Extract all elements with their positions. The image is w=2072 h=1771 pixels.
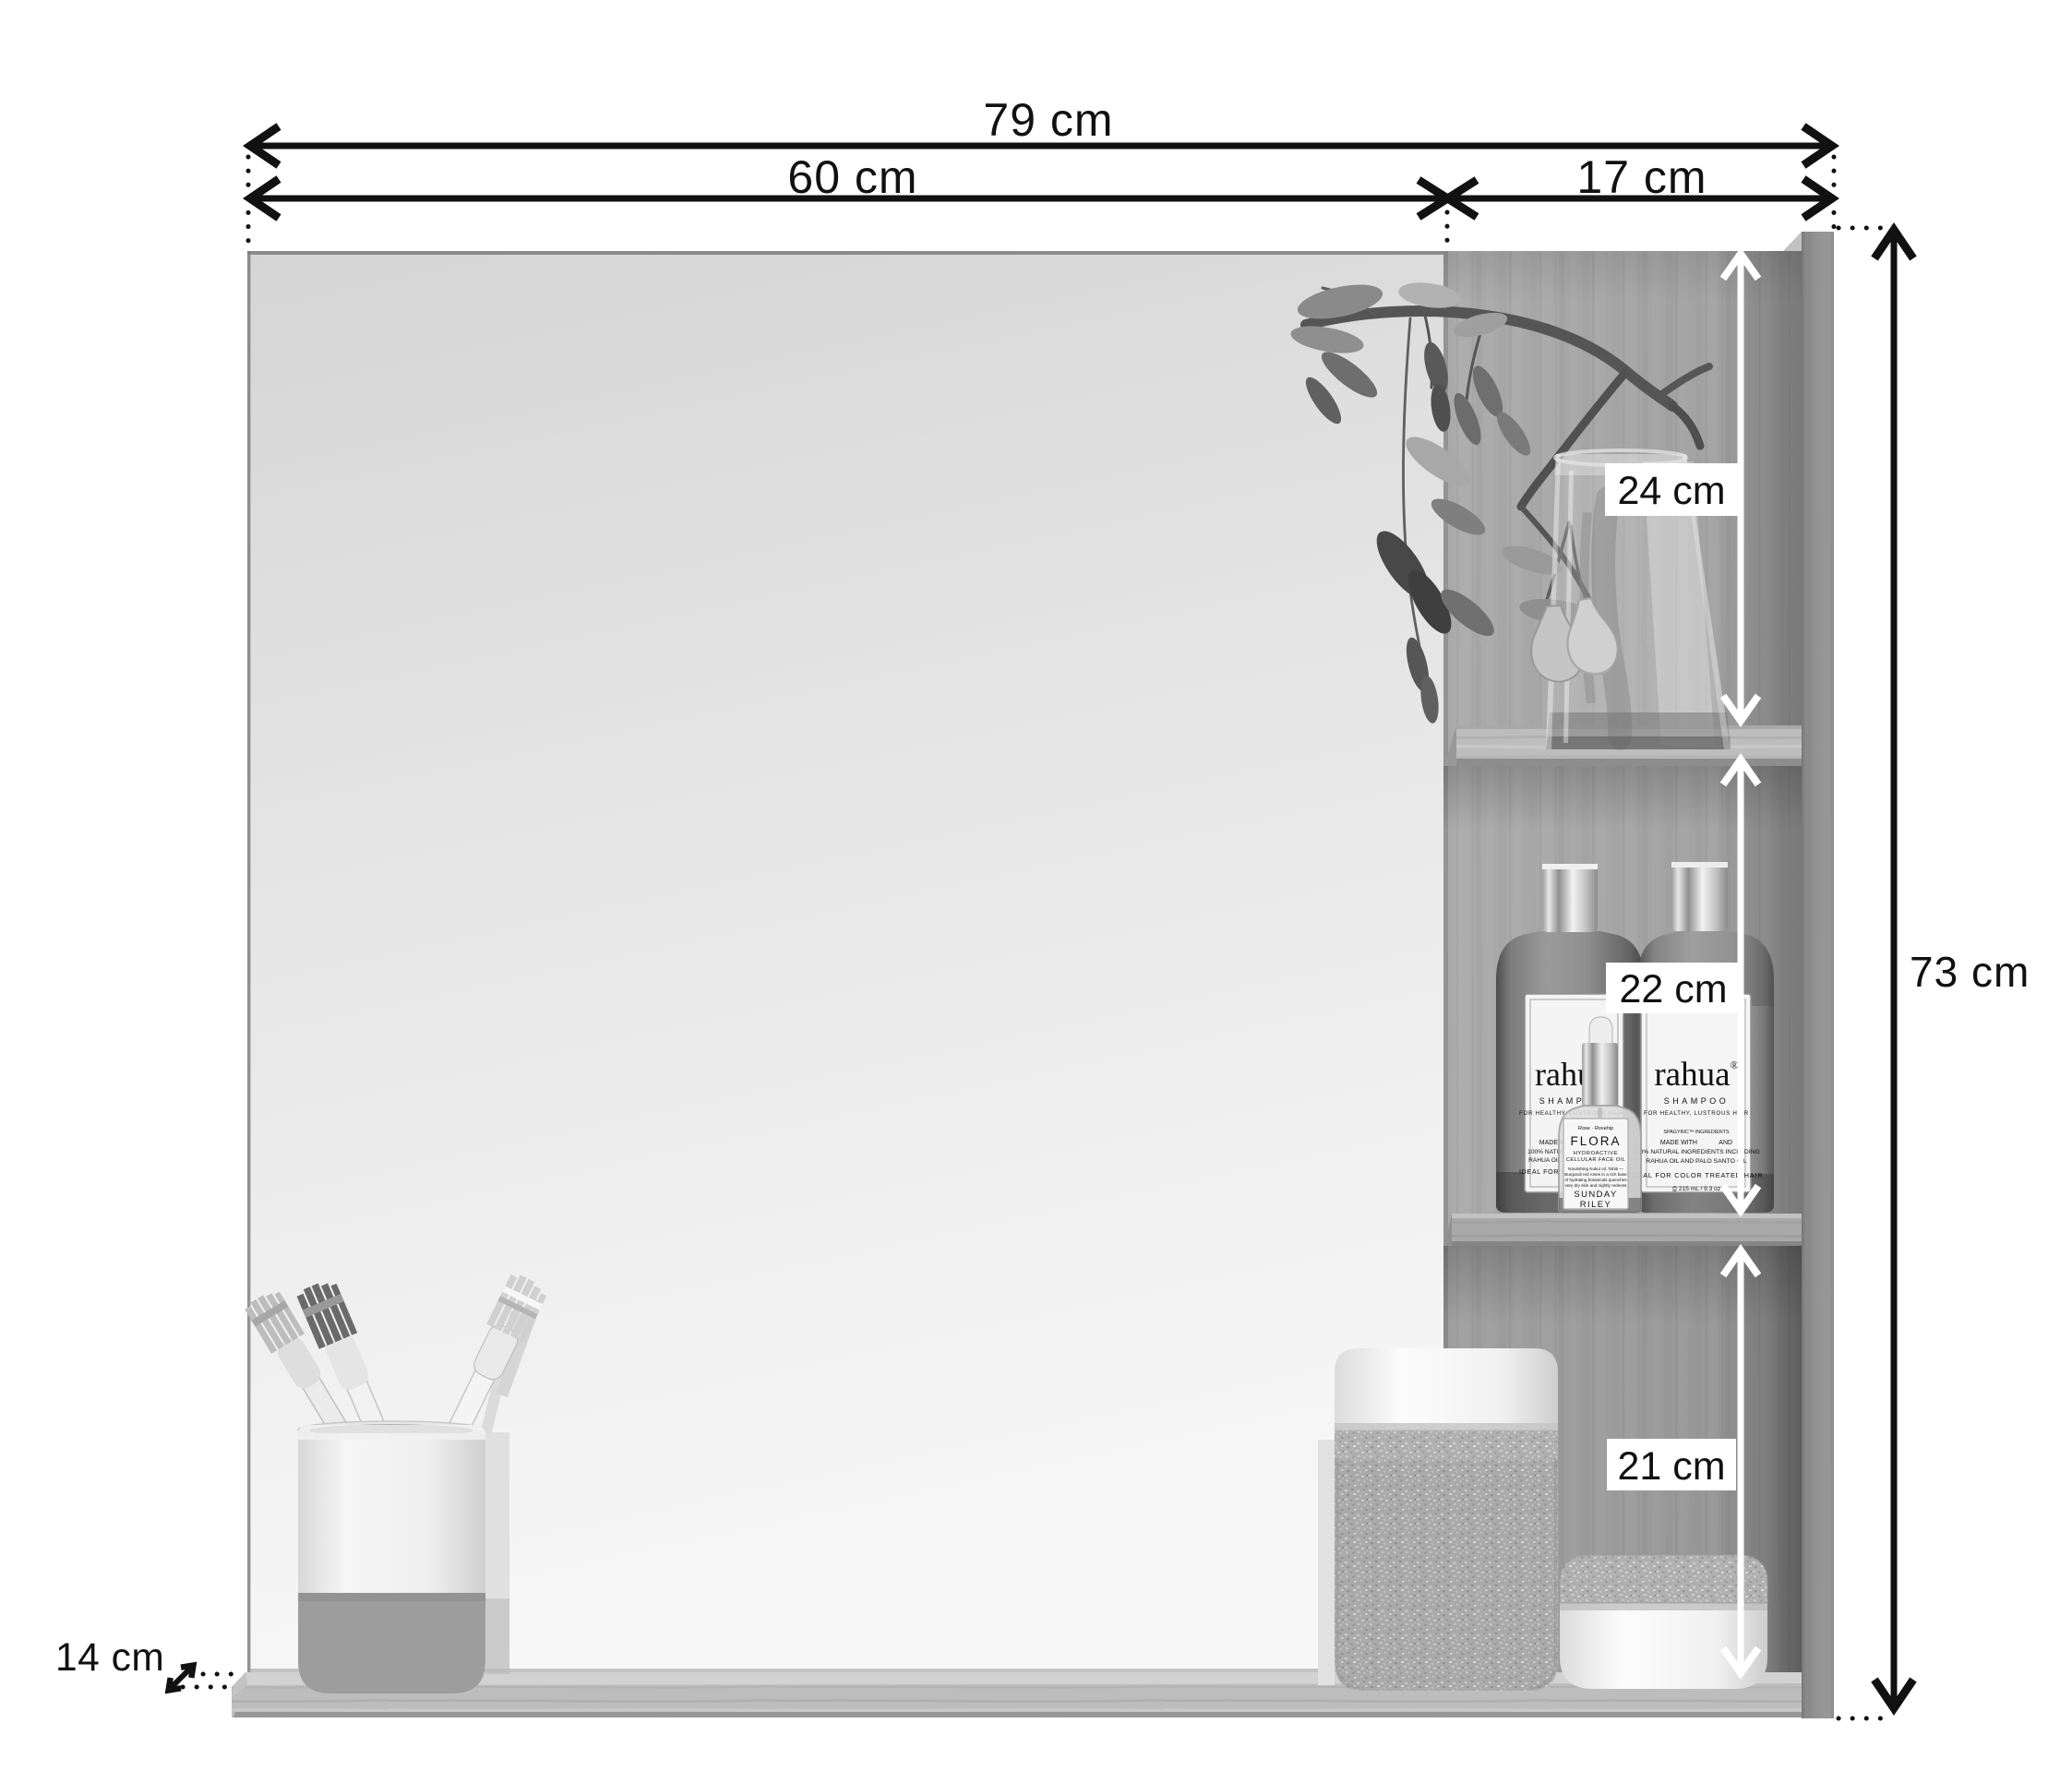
svg-text:MADE WITH AND: MADE WITH AND [1660,1140,1732,1146]
svg-text:RAHUA OIL AND PALO SANTO OIL: RAHUA OIL AND PALO SANTO OIL [1646,1158,1747,1165]
svg-text:⎙ 215 mL / 9.3 oz: ⎙ 215 mL / 9.3 oz [1672,1186,1720,1192]
svg-text:60 cm: 60 cm [787,151,917,203]
svg-text:of hydrating botanicals quench: of hydrating botanicals quenches [1564,1178,1627,1182]
svg-text:Rose · Rosehip: Rose · Rosehip [1578,1126,1614,1131]
svg-text:73 cm: 73 cm [1910,948,2030,996]
svg-text:FOR HEALTHY, LUSTROUS HAIR: FOR HEALTHY, LUSTROUS HAIR [1644,1110,1749,1117]
svg-text:22 cm: 22 cm [1619,967,1727,1011]
svg-text:14 cm: 14 cm [55,1636,164,1680]
svg-text:SUNDAY: SUNDAY [1574,1190,1617,1200]
svg-text:FLORA: FLORA [1570,1134,1621,1148]
svg-text:Nourishing Kukui oil, Tahiti —: Nourishing Kukui oil, Tahiti — [1568,1167,1623,1171]
svg-text:SPAGYRIC™ INGREDIENTS: SPAGYRIC™ INGREDIENTS [1663,1130,1730,1135]
svg-text:very dry skin and nightly redn: very dry skin and nightly redness [1565,1183,1628,1188]
svg-text:79 cm: 79 cm [983,94,1113,146]
svg-text:rahua®: rahua® [1654,1056,1738,1094]
svg-text:SHAMPOO: SHAMPOO [1664,1096,1730,1106]
svg-text:17 cm: 17 cm [1576,151,1707,203]
svg-text:HYDROACTIVE: HYDROACTIVE [1574,1151,1618,1156]
svg-text:24 cm: 24 cm [1617,469,1725,513]
svg-text:CELLULAR FACE OIL: CELLULAR FACE OIL [1566,1157,1626,1163]
svg-text:21 cm: 21 cm [1617,1444,1725,1489]
svg-text:Burgundi red roses in a rich b: Burgundi red roses in a rich base [1564,1172,1627,1177]
svg-text:RILEY: RILEY [1580,1200,1611,1210]
